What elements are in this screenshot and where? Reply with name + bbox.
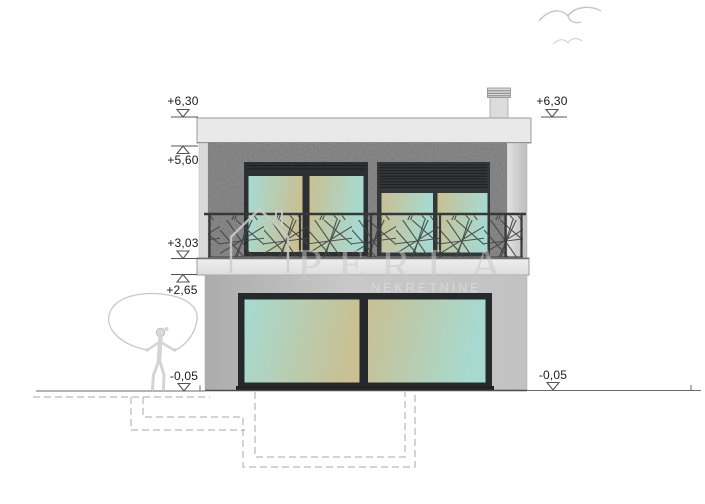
level-triangle-balcony-bottom: [177, 275, 189, 283]
level-triangle-right-ground: [547, 383, 559, 391]
door-threshold: [236, 386, 494, 390]
chimney: [488, 88, 511, 119]
elevation-sheet: +6,30 +5,60 +3,03 +2,65 -0,05 +6,30 -0,0…: [0, 0, 705, 504]
jump-rope-icon: [109, 294, 198, 350]
level-triangle-right-parapet: [546, 110, 558, 118]
level-label-balcony-bottom: +2,65: [166, 283, 197, 297]
seagull-icon: [539, 7, 601, 22]
foundation-dashed-lines: [33, 392, 415, 467]
level-triangle-left-ground: [178, 384, 190, 392]
watermark-subtitle: NEKRETNINE: [371, 281, 482, 295]
level-label-left-ground: -0,05: [170, 369, 198, 383]
level-label-left-roof: +5,60: [167, 153, 198, 167]
sliding-glass-door: [236, 293, 494, 390]
level-label-left-parapet: +6,30: [167, 94, 198, 108]
roof-slab: [197, 118, 531, 143]
level-triangle-left-parapet: [177, 110, 189, 118]
level-label-balcony-top: +3,03: [167, 236, 198, 250]
level-label-right-ground: -0,05: [539, 368, 567, 382]
level-triangle-balcony-top: [177, 251, 189, 259]
level-label-right-parapet: +6,30: [536, 94, 567, 108]
small-seagull-icon: [553, 39, 582, 44]
